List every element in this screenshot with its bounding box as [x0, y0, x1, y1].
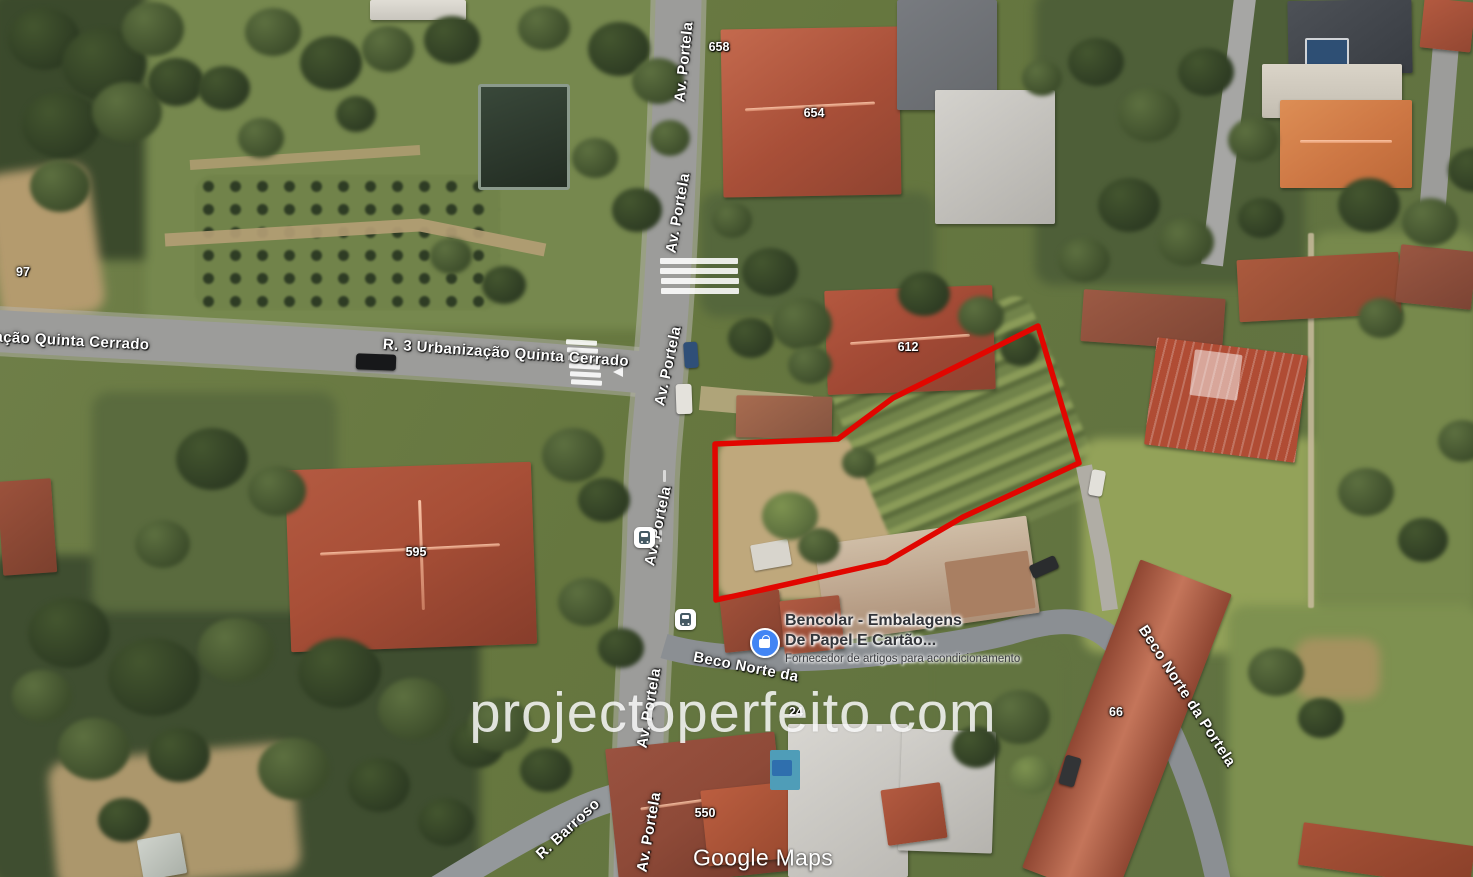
house-number-66: 66	[1109, 705, 1123, 719]
map-canvas[interactable]: Av. Portela Av. Portela Av. Portela Av. …	[0, 0, 1473, 877]
watermark-text: projectoperfeito.com	[469, 680, 996, 745]
parcel-outline[interactable]	[715, 326, 1079, 600]
google-maps-attribution[interactable]: Google Maps	[693, 845, 833, 872]
house-number-654: 654	[804, 106, 825, 120]
poi-subtitle: Fornecedor de artigos para acondicioname…	[785, 653, 1020, 665]
parcel-overlay	[0, 0, 1473, 877]
house-number-550: 550	[695, 806, 716, 820]
house-number-595: 595	[406, 545, 427, 559]
bus-stop-icon[interactable]	[675, 609, 696, 630]
house-number-612: 612	[898, 340, 919, 354]
house-number-658: 658	[709, 40, 730, 54]
shopping-bag-icon[interactable]	[750, 628, 780, 658]
poi-title-line1[interactable]: Bencolar - Embalagens	[785, 611, 962, 630]
bus-stop-icon[interactable]	[634, 527, 655, 548]
poi-title-line2[interactable]: De Papel E Cartão...	[785, 631, 936, 650]
house-number-97: 97	[16, 265, 30, 279]
